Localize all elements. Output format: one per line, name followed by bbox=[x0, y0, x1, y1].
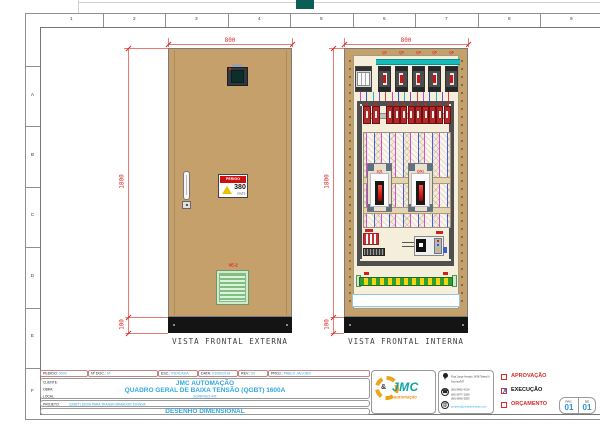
handle-lock-dot bbox=[186, 204, 188, 206]
external-view-caption: VISTA FRONTAL EXTERNA bbox=[160, 337, 300, 346]
danger-sticker-header: PERIGO bbox=[220, 176, 246, 183]
work-title: QUADRO GERAL DE BAIXA TENSÃO (QGBT) 1600… bbox=[41, 387, 369, 394]
contact-address-2: Sorriso/MT bbox=[451, 380, 464, 383]
breaker-toggle bbox=[383, 75, 386, 83]
projeto-value: (QGBT) 1600A PARA TRANSFORMADOR 1000kVA bbox=[69, 403, 146, 406]
window-left-line bbox=[78, 0, 79, 13]
breaker-label: Q5 bbox=[429, 51, 441, 54]
din-breaker-label-mark bbox=[388, 103, 391, 105]
breaker-terminal-bottom bbox=[379, 87, 390, 91]
approval-label: ORÇAMENTO bbox=[511, 401, 547, 407]
din-breaker-toggle bbox=[389, 111, 391, 118]
dim-line bbox=[168, 44, 292, 45]
main-breaker-rocker bbox=[378, 185, 382, 201]
info-field: ESC.: INDICADA bbox=[158, 370, 198, 377]
control-wire bbox=[404, 92, 405, 101]
ruler-row-tick bbox=[25, 66, 40, 67]
din-breaker-toggle bbox=[417, 111, 419, 118]
din-breaker-label-mark bbox=[446, 103, 449, 105]
ruler-row-label: C bbox=[27, 213, 39, 218]
ruler-row-tick bbox=[25, 247, 40, 248]
frame-rail-holes-right bbox=[459, 57, 465, 305]
contact-email: projetos@jmcautomacao.com bbox=[451, 406, 487, 409]
drawing-sheet: 123456789 ABCDEF PERIGO 380 VOLTS VE-2 V… bbox=[0, 0, 600, 428]
din-breaker-toggle bbox=[396, 111, 398, 118]
pag-value: 01 bbox=[560, 403, 578, 412]
multimeter-screen bbox=[231, 70, 244, 83]
external-plinth bbox=[168, 317, 292, 333]
ruler-col-label: 6 bbox=[359, 17, 408, 22]
internal-view-caption: VISTA FRONTAL INTERNA bbox=[336, 337, 476, 346]
ground-bar-mark bbox=[364, 272, 369, 275]
din-breaker-toggle bbox=[439, 111, 441, 118]
din-breaker-label-mark bbox=[395, 103, 398, 105]
contactor-label bbox=[436, 231, 443, 234]
breaker-label: Q6 bbox=[446, 51, 458, 54]
control-wire bbox=[429, 92, 430, 101]
control-wire bbox=[385, 92, 386, 101]
din-breaker-label-mark bbox=[374, 103, 377, 105]
info-field: REV.: 00 bbox=[238, 370, 268, 377]
info-label: PROJ.: bbox=[271, 372, 283, 376]
breaker-terminal-cap bbox=[386, 164, 392, 171]
terminal-block-red-label bbox=[365, 229, 373, 232]
din-breaker-label-mark bbox=[431, 103, 434, 105]
ruler-row-label: B bbox=[27, 153, 39, 158]
plinth-bolt bbox=[349, 324, 351, 326]
din-breaker-toggle bbox=[375, 111, 377, 118]
checkbox bbox=[501, 374, 507, 380]
info-field: PEDIDO: 9000 bbox=[40, 370, 88, 377]
info-label: Nº DOC.: bbox=[91, 372, 106, 376]
contact-address-1: Rua Jorge Amado 1438 Talard II bbox=[451, 376, 490, 379]
contact-phone-2: (66) 9977-1366 bbox=[451, 393, 469, 396]
location-pin-icon bbox=[443, 373, 448, 378]
de-value: 01 bbox=[578, 403, 596, 412]
ground-busbar bbox=[359, 277, 453, 286]
email-icon: @ bbox=[441, 401, 449, 409]
dim-internal-height: 1800 bbox=[324, 167, 331, 197]
din-breaker-toggle bbox=[410, 111, 412, 118]
phone-glyph: ☎ bbox=[442, 389, 448, 395]
logo-tagline: automação bbox=[394, 396, 417, 400]
dim-internal-base: 100 bbox=[324, 310, 331, 340]
logo-ampersand: & bbox=[381, 384, 386, 391]
info-field: Nº DOC.: Nº bbox=[88, 370, 158, 377]
breaker-terminal-top bbox=[413, 67, 424, 71]
din-breaker-label-mark bbox=[365, 103, 368, 105]
ruler-row-label: D bbox=[27, 274, 39, 279]
window-top-line bbox=[78, 2, 600, 3]
info-label: PEDIDO: bbox=[43, 372, 58, 376]
info-value: Nº bbox=[106, 372, 111, 376]
breaker-terminal-cap bbox=[368, 164, 374, 171]
breaker-terminal-top bbox=[379, 67, 390, 71]
ruler-col-tick bbox=[353, 13, 354, 27]
control-wire bbox=[398, 92, 399, 101]
contactor-coil-window bbox=[419, 243, 423, 247]
breaker-toggle bbox=[450, 75, 453, 83]
info-value: PABLO JACOBS bbox=[283, 372, 311, 376]
contactor-terminal-blue bbox=[443, 247, 447, 253]
control-wire bbox=[436, 92, 437, 101]
ruler-col-label: 9 bbox=[547, 17, 596, 22]
din-breaker-label-mark bbox=[424, 103, 427, 105]
dim-line bbox=[333, 48, 334, 317]
titlebar-fragment bbox=[296, 0, 314, 9]
din-breaker-label-mark bbox=[402, 103, 405, 105]
ruler-col-tick bbox=[415, 13, 416, 27]
info-field-text: ESC.: INDICADA bbox=[161, 372, 189, 376]
breaker-terminal-bottom bbox=[446, 87, 457, 91]
breaker-terminal-cap bbox=[409, 164, 415, 171]
drawing-title: DESENHO DIMENSIONAL bbox=[41, 409, 369, 415]
din-breaker-toggle bbox=[403, 111, 405, 118]
din-breaker-label-mark bbox=[410, 103, 413, 105]
info-field-text: DATA: 03/05/2018 bbox=[201, 372, 230, 376]
external-door-gap-right bbox=[286, 50, 287, 315]
breaker-terminal-top bbox=[429, 67, 440, 71]
breaker-toggle bbox=[433, 75, 436, 83]
din-breaker-toggle bbox=[446, 111, 448, 118]
plinth-bolt bbox=[173, 324, 175, 326]
info-label: DATA: bbox=[201, 372, 211, 376]
breaker-toggle bbox=[400, 75, 403, 83]
ruler-row-tick bbox=[25, 308, 40, 309]
vent-label: VE-2 bbox=[222, 264, 244, 268]
danger-voltage: 380 bbox=[233, 184, 247, 191]
main-breaker-rocker bbox=[419, 185, 423, 201]
ruler-col-label: 8 bbox=[484, 17, 533, 22]
at-glyph: @ bbox=[443, 402, 448, 408]
info-field: DATA: 03/05/2018 bbox=[198, 370, 238, 377]
info-label: ESC.: bbox=[161, 372, 170, 376]
din-breaker-label-mark bbox=[417, 103, 420, 105]
control-wire bbox=[360, 92, 361, 101]
plinth-bolt bbox=[462, 324, 464, 326]
multimeter-led bbox=[229, 68, 231, 70]
breaker-terminal-bottom bbox=[413, 87, 424, 91]
control-wire bbox=[417, 92, 418, 101]
contact-phone-1: (66) 9992-4319 bbox=[451, 389, 469, 392]
breaker-label: Q3 bbox=[395, 51, 407, 54]
aux-dot-yellow bbox=[437, 248, 439, 250]
info-field-text: PROJ.: PABLO JACOBS bbox=[271, 372, 311, 376]
dim-internal-width: 800 bbox=[391, 37, 421, 44]
dim-external-height: 1800 bbox=[119, 167, 126, 197]
projeto-box: PROJETO: (QGBT) 1600A PARA TRANSFORMADOR… bbox=[40, 400, 370, 407]
phone-icon: ☎ bbox=[441, 388, 449, 396]
vent-louvers bbox=[219, 273, 246, 302]
breaker-terminal-bottom bbox=[429, 87, 440, 91]
sheet-inner-border bbox=[40, 27, 600, 415]
breaker-terminal-top bbox=[396, 67, 407, 71]
door-handle-slot bbox=[186, 175, 187, 195]
location: SORRISO-MT bbox=[103, 395, 306, 399]
main-breaker-label: QG1 bbox=[416, 170, 425, 173]
breaker-label: Q2 bbox=[379, 51, 391, 54]
ruler-col-label: 2 bbox=[109, 17, 158, 22]
info-value: INDICADA bbox=[170, 372, 188, 376]
internal-plinth bbox=[344, 317, 468, 333]
logo-name: JMC bbox=[392, 380, 419, 394]
approval-label: EXECUÇÃO bbox=[511, 387, 542, 393]
client-box: CLIENTE: JMC AUTOMAÇÃO OBRA: QUADRO GERA… bbox=[40, 378, 370, 399]
breaker-terminal-bottom bbox=[396, 87, 407, 91]
external-door-gap-left bbox=[174, 50, 175, 315]
ruler-col-tick bbox=[103, 13, 104, 27]
info-field: PROJ.: PABLO JACOBS bbox=[268, 370, 370, 377]
ruler-col-tick bbox=[478, 13, 479, 27]
ruler-col-tick bbox=[228, 13, 229, 27]
dim-line bbox=[128, 48, 129, 317]
control-wire bbox=[366, 92, 367, 101]
checkbox-mark: X bbox=[502, 388, 508, 395]
drawing-title-box: DESENHO DIMENSIONAL bbox=[40, 408, 370, 415]
dim-line bbox=[124, 317, 168, 318]
ruler-col-label: 3 bbox=[172, 17, 221, 22]
breaker-label: Q4 bbox=[412, 51, 424, 54]
dim-external-width: 800 bbox=[215, 37, 245, 44]
din-breaker-toggle bbox=[366, 111, 368, 118]
ruler-col-tick bbox=[165, 13, 166, 27]
ruler-row-tick bbox=[25, 368, 40, 369]
aux-dot-red bbox=[437, 240, 439, 242]
danger-title: PERIGO bbox=[225, 177, 241, 181]
ruler-col-tick bbox=[540, 13, 541, 27]
ruler-col-tick bbox=[290, 13, 291, 27]
company-name: JMC AUTOMAÇÃO bbox=[41, 380, 369, 387]
warning-triangle-icon bbox=[222, 186, 232, 194]
local-label: LOCAL: bbox=[43, 395, 55, 398]
terminal-strip-dark bbox=[363, 248, 385, 256]
projeto-label: PROJETO: bbox=[43, 403, 59, 406]
ruler-col-label: 1 bbox=[47, 17, 96, 22]
control-wire bbox=[392, 92, 393, 101]
breaker-terminal-cap bbox=[427, 164, 433, 171]
molded-breaker-bottom-band bbox=[356, 87, 371, 91]
control-wire bbox=[423, 92, 424, 101]
info-field-text: Nº DOC.: Nº bbox=[91, 372, 111, 376]
info-field-text: REV.: 00 bbox=[241, 372, 255, 376]
molded-breaker-top-band bbox=[356, 67, 371, 71]
control-wire bbox=[373, 92, 374, 101]
ruler-row-tick bbox=[25, 126, 40, 127]
ruler-col-label: 5 bbox=[297, 17, 346, 22]
dim-external-base: 100 bbox=[119, 310, 126, 340]
molded-breaker-face bbox=[357, 72, 370, 86]
ruler-row-label: A bbox=[27, 93, 39, 98]
ruler-col-label: 7 bbox=[422, 17, 471, 22]
terminal-block-red bbox=[363, 233, 379, 245]
info-field-text: PEDIDO: 9000 bbox=[43, 372, 67, 376]
control-wire bbox=[442, 92, 443, 101]
frame-screw bbox=[360, 104, 362, 106]
page-number-box: PAG. 01 DE 01 bbox=[559, 397, 596, 414]
din-breaker-toggle bbox=[425, 111, 427, 118]
info-value: 00 bbox=[250, 372, 255, 376]
frame-screw bbox=[360, 259, 362, 261]
control-wire bbox=[379, 92, 380, 101]
breaker-toggle bbox=[417, 75, 420, 83]
plinth-bolt bbox=[286, 324, 288, 326]
checkbox: X bbox=[501, 388, 507, 394]
contact-phone-3: (66) 9690-3283 bbox=[451, 398, 469, 401]
control-wire bbox=[410, 92, 411, 101]
info-label: REV.: bbox=[241, 372, 250, 376]
din-breaker-label-mark bbox=[438, 103, 441, 105]
dim-line bbox=[124, 333, 168, 334]
info-value: 9000 bbox=[58, 372, 67, 376]
checkbox bbox=[501, 402, 507, 408]
approval-label: APROVAÇÃO bbox=[511, 373, 546, 379]
ruler-col-label: 4 bbox=[234, 17, 283, 22]
main-breaker-label: 1Q1 bbox=[375, 170, 384, 173]
ground-bar-mark bbox=[443, 272, 448, 275]
din-breaker-toggle bbox=[432, 111, 434, 118]
cable-duct bbox=[352, 294, 460, 307]
ruler-row-label: E bbox=[27, 334, 39, 339]
control-wire bbox=[448, 92, 449, 101]
aux-dot-blue bbox=[437, 244, 439, 246]
frame-screw bbox=[449, 259, 451, 261]
top-busbar bbox=[376, 59, 460, 65]
dim-line bbox=[344, 44, 468, 45]
danger-unit: VOLTS bbox=[237, 193, 243, 196]
ruler-row-tick bbox=[25, 187, 40, 188]
breaker-terminal-top bbox=[446, 67, 457, 71]
ruler-row-label: F bbox=[27, 389, 39, 394]
dim-line bbox=[124, 48, 168, 49]
info-value: 03/05/2018 bbox=[211, 372, 230, 376]
